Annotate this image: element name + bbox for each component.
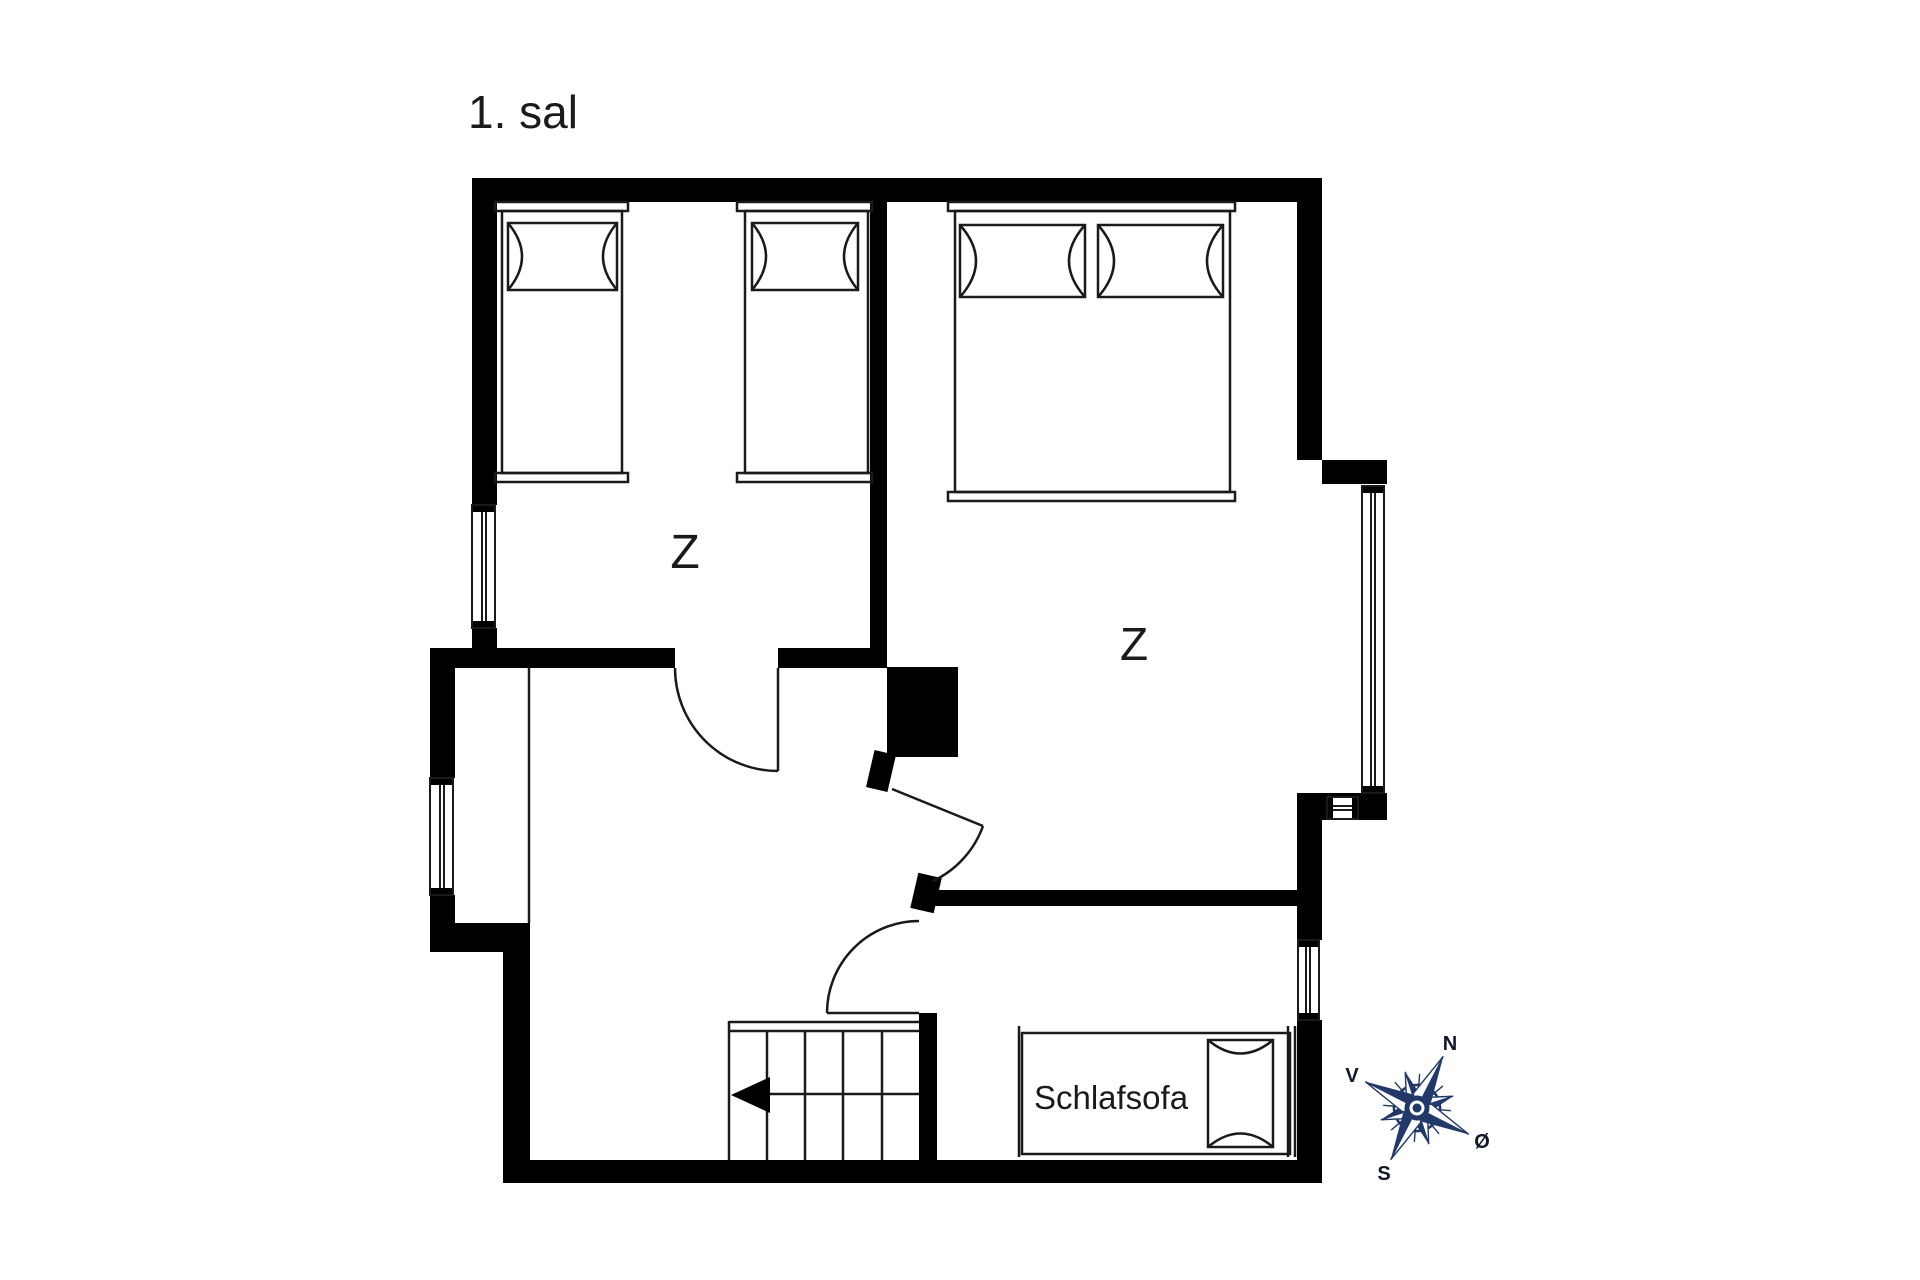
window-upper-left [472, 505, 495, 628]
door-bedroom-right [892, 789, 983, 881]
compass-north-label: N [1443, 1033, 1457, 1055]
compass-west-label: V [1345, 1065, 1359, 1087]
window-small-bay-bottom [1327, 797, 1358, 819]
double-bed [948, 202, 1235, 501]
pillow-icon [1208, 1040, 1273, 1147]
compass-rose-icon: N V S Ø [1339, 1030, 1495, 1186]
sleeper-sofa-label: Schlafsofa [1034, 1079, 1189, 1116]
compass-east-label: Ø [1474, 1131, 1490, 1153]
pillow-icon [508, 223, 617, 290]
door-jamb-stub [866, 750, 896, 792]
window-lower-right [1298, 940, 1319, 1020]
single-bed-right [737, 202, 872, 482]
sleeper-sofa: Schlafsofa [1019, 1026, 1295, 1157]
floor-plan-svg: 1. sal [0, 0, 1920, 1280]
floor-title: 1. sal [468, 86, 578, 138]
single-bed-left [495, 202, 628, 482]
room-label-bedroom-right: Z [1120, 618, 1148, 670]
stair-direction-arrow-icon [731, 1077, 770, 1113]
pillow-icon [752, 223, 858, 290]
door-bedroom-left [675, 668, 778, 771]
compass-south-label: S [1377, 1163, 1390, 1185]
pillow-icon [960, 225, 1085, 297]
door-sofa-room [827, 921, 919, 1013]
window-lower-left [430, 778, 453, 895]
staircase [729, 1021, 919, 1160]
room-label-bedroom-left: Z [670, 526, 699, 579]
floor-plan-page: 1. sal [0, 0, 1920, 1280]
pillow-icon [1098, 225, 1223, 297]
window-bay-right [1362, 486, 1384, 793]
